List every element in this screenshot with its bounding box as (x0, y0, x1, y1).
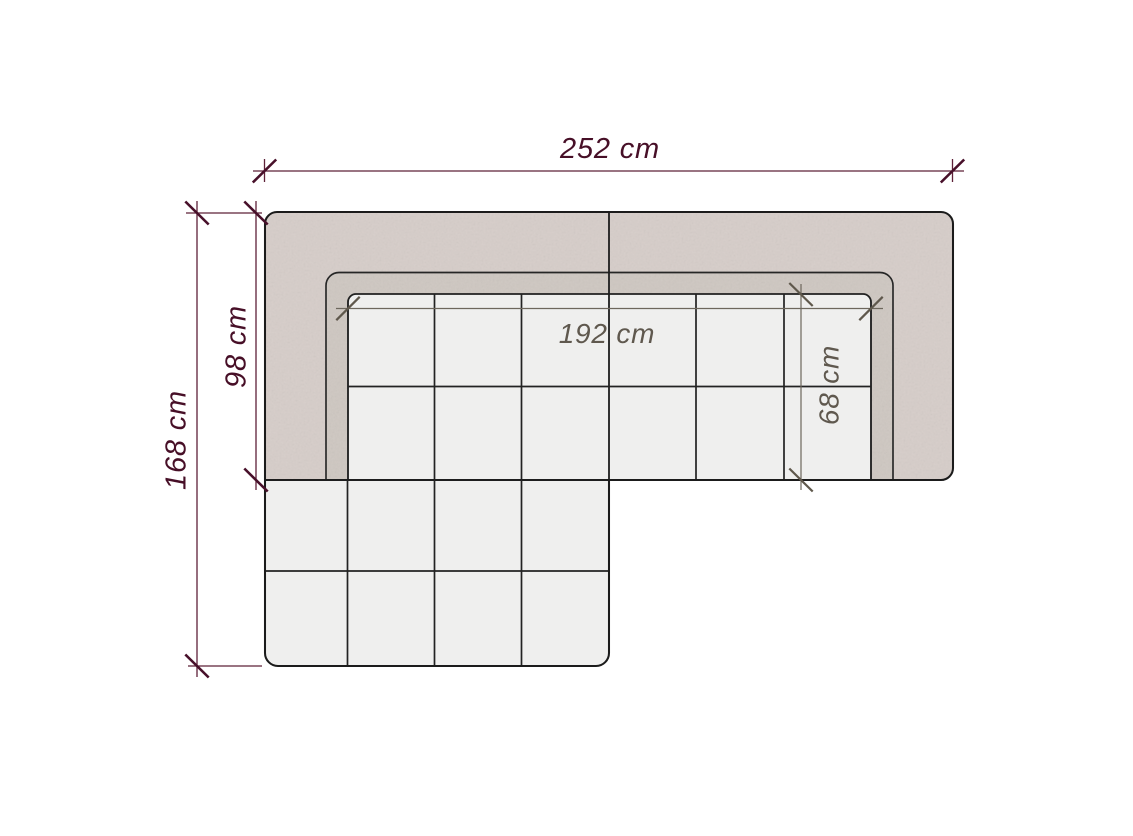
svg-text:252 cm: 252 cm (559, 133, 660, 165)
svg-text:192 cm: 192 cm (559, 318, 656, 349)
svg-text:98 cm: 98 cm (221, 305, 253, 388)
svg-text:68 cm: 68 cm (814, 345, 845, 425)
svg-text:168 cm: 168 cm (161, 390, 193, 490)
